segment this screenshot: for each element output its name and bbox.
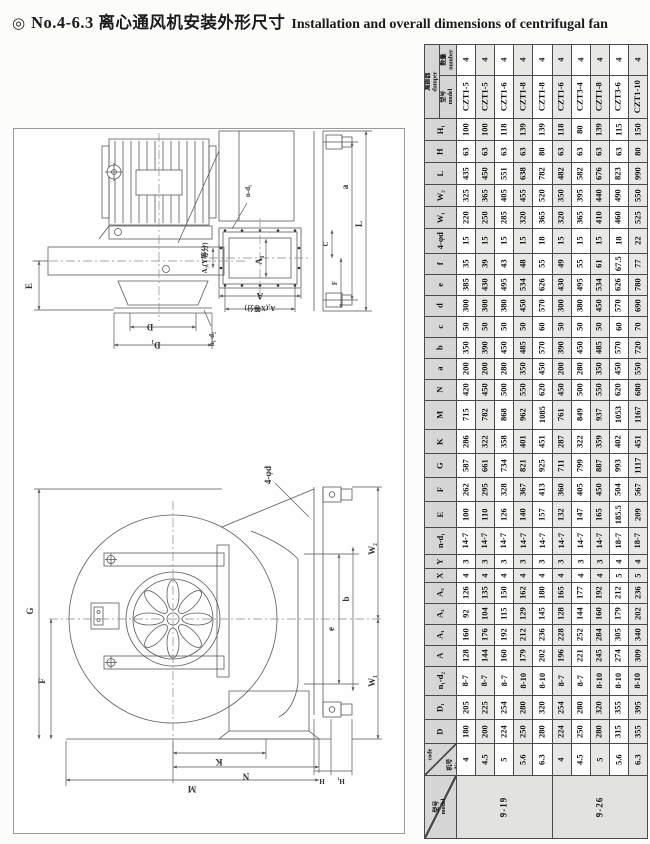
table-cell-text: 495: [500, 279, 509, 292]
dim-label-A: A: [256, 291, 263, 301]
table-cell: 300: [476, 296, 494, 316]
table-cell: 55: [533, 254, 551, 274]
table-cell-text: 50: [480, 323, 489, 332]
table-cell-text: 430: [557, 279, 566, 292]
side-view-drawing: E D D₁ n₁-d₂ A₁ A A₂(X等分) A₃(Y等分) n-d₁ a…: [14, 129, 404, 459]
table-cell-text: 104: [480, 608, 489, 621]
table-cell: 280: [495, 359, 513, 379]
table-cell: 380: [572, 296, 590, 316]
table-cell-text: 4: [461, 58, 470, 62]
table-cell: 780: [629, 275, 647, 295]
table-cell-text: 350: [595, 363, 604, 376]
row-label: W₁: [425, 207, 456, 228]
table-cell: 8-10: [514, 667, 532, 695]
table-cell: CZT1-6: [495, 76, 513, 118]
table-cell: 4: [476, 45, 494, 75]
table-cell-text: 50: [557, 323, 566, 332]
table-cell-text: 145: [538, 608, 547, 621]
table-cell: 205: [457, 696, 475, 719]
table-cell-text: 380: [500, 300, 509, 313]
table-cell-text: 993: [614, 459, 623, 472]
table-cell: 15: [457, 229, 475, 253]
table-cell-text: 15: [519, 237, 528, 246]
table-cell-text: 355: [633, 725, 642, 738]
table-cell: 482: [553, 163, 571, 184]
table-cell: 192: [495, 625, 513, 645]
table-cell-text: 147: [576, 508, 585, 521]
table-cell: 129: [514, 604, 532, 624]
table-cell-text: 60: [614, 323, 623, 332]
table-cell: 80: [572, 119, 590, 140]
table-cell-text: 761: [557, 409, 566, 422]
page-title-zh: No.4-6.3 离心通风机安装外形尺寸: [31, 9, 285, 33]
table-cell: 160: [457, 625, 475, 645]
dimensions-table: 减振器 damper数量 number4444444444型号 modelCZT…: [424, 44, 648, 839]
table-cell-text: 395: [576, 189, 585, 202]
table-cell-text: 711: [557, 459, 566, 471]
table-cell: 115: [610, 119, 628, 140]
table-cell: 823: [610, 163, 628, 184]
table-cell: 3: [476, 555, 494, 568]
table-cell-text: 118: [500, 123, 509, 135]
table-cell: 4: [514, 45, 532, 75]
table-cell-text: 4: [595, 58, 604, 62]
table-cell: 385: [457, 275, 475, 295]
row-label: X: [425, 569, 456, 582]
table-cell: 782: [533, 163, 551, 184]
table-cell: 300: [457, 296, 475, 316]
table-cell-text: 925: [538, 459, 547, 472]
table-cell: 110: [476, 502, 494, 527]
table-cell: 455: [514, 185, 532, 206]
table-cell-text: 192: [500, 629, 509, 642]
table-cell-text: 61: [595, 260, 604, 269]
table-cell-text: 450: [576, 342, 585, 355]
table-cell-text: CZT3-4: [576, 83, 585, 112]
dim-label-nd1: n-d₁: [244, 185, 252, 197]
table-cell: 3: [572, 555, 590, 568]
table-cell-text: 221: [576, 650, 585, 663]
dim-label-G: G: [25, 607, 35, 614]
table-cell-text: 8-7: [480, 675, 489, 686]
row-label-text: f: [436, 263, 445, 266]
table-cell: 140: [514, 502, 532, 527]
table-cell: 35: [457, 254, 475, 274]
table-cell-text: 80: [576, 125, 585, 134]
table-cell: 60: [533, 317, 551, 337]
table-cell-text: 15: [576, 237, 585, 246]
table-cell: 4: [591, 45, 609, 75]
page-title: ◎ No.4-6.3 离心通风机安装外形尺寸 Installation and …: [12, 9, 608, 33]
table-cell-text: 202: [633, 608, 642, 621]
table-cell: 450: [572, 338, 590, 358]
table-cell-text: 115: [614, 123, 623, 135]
table-cell-text: 3: [538, 559, 547, 563]
table-cell: 320: [591, 696, 609, 719]
table-cell-text: 212: [614, 587, 623, 600]
table-cell-text: 322: [576, 435, 585, 448]
table-cell: 179: [610, 604, 628, 624]
table-cell-text: 390: [480, 342, 489, 355]
table-cell: CZT3-6: [610, 76, 628, 118]
table-cell-text: 320: [557, 211, 566, 224]
row-label-text: D₁: [436, 703, 445, 712]
dim-label-N: N: [242, 771, 249, 781]
table-cell: CZT1-8: [533, 76, 551, 118]
table-cell: 350: [457, 338, 475, 358]
table-cell-text: 43: [500, 260, 509, 269]
row-label: 4-φd: [425, 229, 456, 253]
table-cell: 128: [457, 646, 475, 666]
table-cell: 14-7: [591, 528, 609, 554]
table-cell-text: 500: [500, 384, 509, 397]
table-cell: 365: [476, 185, 494, 206]
table-cell: 118: [553, 119, 571, 140]
table-cell: 92: [457, 604, 475, 624]
table-cell-text: 160: [461, 629, 470, 642]
table-cell-text: 165: [595, 508, 604, 521]
table-cell-text: 482: [557, 167, 566, 180]
table-cell-text: 115: [500, 608, 509, 620]
row-label-model-text: 型号 model: [434, 799, 447, 815]
row-label-text: L: [436, 171, 445, 177]
table-cell-text: 144: [576, 608, 585, 621]
table-cell: 157: [533, 502, 551, 527]
table-cell: 485: [514, 338, 532, 358]
dim-label-K: K: [215, 757, 222, 767]
row-label: L: [425, 163, 456, 184]
table-cell-text: 128: [557, 608, 566, 621]
table-cell: 5: [629, 569, 647, 582]
table-cell: 570: [533, 296, 551, 316]
table-cell: 280: [591, 720, 609, 743]
table-cell: 280: [514, 696, 532, 719]
table-cell: 60: [610, 317, 628, 337]
table-cell: 485: [591, 338, 609, 358]
row-label: K: [425, 430, 456, 453]
table-cell-text: 5: [633, 573, 642, 577]
table-cell-text: 8-10: [614, 673, 623, 689]
table-cell: 450: [514, 296, 532, 316]
table-cell-text: 63: [480, 147, 489, 156]
table-cell: 3: [495, 555, 513, 568]
table-cell-text: 15: [557, 237, 566, 246]
table-cell: 626: [533, 275, 551, 295]
table-cell: 500: [495, 380, 513, 400]
table-cell-text: 48: [519, 260, 528, 269]
table-cell-text: 280: [500, 363, 509, 376]
table-cell: 8-10: [610, 667, 628, 695]
table-cell-text: 236: [538, 629, 547, 642]
table-cell-text: 410: [595, 211, 604, 224]
row-label: A₁: [425, 625, 456, 645]
table-cell-text: 780: [633, 279, 642, 292]
row-label-text: d: [436, 304, 445, 309]
table-cell: 63: [610, 141, 628, 162]
row-label-text: Y: [436, 558, 445, 564]
table-cell: CZT1-5: [457, 76, 475, 118]
table-cell-text: 250: [519, 725, 528, 738]
table-cell-text: 50: [595, 323, 604, 332]
table-cell: 4: [591, 569, 609, 582]
table-cell: 4: [553, 569, 571, 582]
table-cell: 55: [572, 254, 590, 274]
table-cell: 5.6: [514, 744, 532, 775]
table-cell-text: 4: [461, 573, 470, 577]
table-cell-text: 135: [480, 587, 489, 600]
table-cell-text: 3: [557, 559, 566, 563]
row-label: n-d₁: [425, 528, 456, 554]
table-cell: 50: [495, 317, 513, 337]
table-cell: 228: [553, 625, 571, 645]
row-label: A: [425, 646, 456, 666]
table-cell: 128: [553, 604, 571, 624]
table-cell: 100: [476, 119, 494, 140]
table-cell-text: 450: [480, 384, 489, 397]
table-cell: 285: [495, 207, 513, 228]
table-cell-text: 280: [519, 701, 528, 714]
table-cell-text: 192: [595, 587, 604, 600]
table-cell: 401: [514, 430, 532, 453]
table-cell-text: 365: [538, 211, 547, 224]
table-cell: 139: [591, 119, 609, 140]
table-cell-text: 359: [595, 435, 604, 448]
row-label-text: H: [436, 148, 445, 155]
drawing-frame: E D D₁ n₁-d₂ A₁ A A₂(X等分) A₃(Y等分) n-d₁ a…: [13, 128, 405, 834]
dim-label-H: H: [319, 777, 325, 785]
dim-label-b: b: [341, 596, 351, 601]
table-cell: 340: [629, 625, 647, 645]
table-cell-text: 520: [538, 189, 547, 202]
table-cell: 4: [457, 45, 475, 75]
table-cell-text: 22: [633, 237, 642, 246]
catalog-page: { "title": { "bullet": "◎", "zh": "No.4-…: [0, 0, 650, 844]
table-cell: 534: [591, 275, 609, 295]
table-cell: 390: [476, 338, 494, 358]
table-cell-text: 18: [614, 237, 623, 246]
table-cell-text: 1167: [633, 407, 642, 424]
table-cell-text: 245: [595, 650, 604, 663]
table-cell: 14-7: [476, 528, 494, 554]
table-cell-text: 367: [519, 483, 528, 496]
table-cell-text: 435: [461, 167, 470, 180]
dim-label-W1: W₁: [367, 675, 377, 687]
table-cell-text: 799: [576, 459, 585, 472]
table-cell: 4: [514, 569, 532, 582]
table-cell: 4: [629, 45, 647, 75]
row-label-text: F: [436, 487, 445, 492]
table-cell: 626: [610, 275, 628, 295]
table-cell-text: 309: [633, 650, 642, 663]
table-cell: 582: [572, 163, 590, 184]
table-cell: CZT1-10: [629, 76, 647, 118]
table-cell: 15: [553, 229, 571, 253]
table-cell: 715: [457, 401, 475, 429]
table-cell-text: 385: [461, 279, 470, 292]
table-cell: 534: [514, 275, 532, 295]
table-cell: 570: [610, 338, 628, 358]
row-label-text: N: [436, 387, 445, 393]
table-cell: 179: [514, 646, 532, 666]
table-cell-text: 504: [614, 483, 623, 496]
table-cell-text: 620: [538, 384, 547, 397]
table-cell: 139: [533, 119, 551, 140]
table-cell: 620: [610, 380, 628, 400]
table-cell: 185.5: [610, 502, 628, 527]
table-cell-text: 3: [595, 559, 604, 563]
table-cell: 360: [553, 478, 571, 501]
row-label-damper-model: 型号 model: [440, 76, 456, 118]
table-cell-text: 224: [557, 725, 566, 738]
table-cell-text: 420: [461, 384, 470, 397]
table-cell: 395: [629, 696, 647, 719]
table-cell-text: 5.6: [519, 754, 528, 765]
table-cell-text: 570: [538, 342, 547, 355]
table-cell: 410: [591, 207, 609, 228]
table-cell-text: 228: [557, 629, 566, 642]
table-cell: 5: [591, 744, 609, 775]
row-label: A₃: [425, 583, 456, 603]
table-cell-text: 287: [557, 435, 566, 448]
table-cell-text: 128: [461, 650, 470, 663]
table-cell: 3: [514, 555, 532, 568]
table-cell-text: 180: [461, 725, 470, 738]
table-cell-text: 990: [633, 167, 642, 180]
table-cell-text: 8-10: [519, 673, 528, 689]
table-cell: 504: [610, 478, 628, 501]
table-cell: 4: [553, 744, 571, 775]
table-cell-text: 162: [519, 587, 528, 600]
front-view-drawing: 4-φd G F W₂ W₁ e b K N M H H₁: [14, 459, 404, 833]
table-cell: 4: [572, 45, 590, 75]
table-cell: 236: [533, 625, 551, 645]
table-cell: 200: [476, 720, 494, 743]
table-cell-text: 450: [614, 363, 623, 376]
table-cell: 711: [553, 454, 571, 477]
table-cell-text: 365: [480, 189, 489, 202]
table-cell-text: 638: [519, 167, 528, 180]
table-cell-text: 430: [480, 279, 489, 292]
table-cell: 212: [514, 625, 532, 645]
table-cell: 5: [610, 569, 628, 582]
table-cell-text: 200: [461, 363, 470, 376]
table-cell: 135: [476, 583, 494, 603]
row-label: G: [425, 454, 456, 477]
row-label-text: b: [436, 346, 445, 351]
table-cell-text: 720: [633, 342, 642, 355]
table-cell-text: 305: [614, 629, 623, 642]
table-cell-text: 14-7: [576, 533, 585, 549]
table-cell: 280: [533, 720, 551, 743]
table-cell: 450: [476, 380, 494, 400]
table-cell: 4: [553, 45, 571, 75]
table-cell-text: 4: [480, 573, 489, 577]
table-cell: 100: [457, 502, 475, 527]
table-cell-text: 782: [538, 167, 547, 180]
table-cell: 250: [572, 720, 590, 743]
table-cell: 200: [457, 359, 475, 379]
table-cell-text: 551: [500, 167, 509, 180]
table-cell-text: 1085: [538, 407, 547, 424]
table-cell: 799: [572, 454, 590, 477]
table-cell: 165: [553, 583, 571, 603]
table-cell-text: 350: [557, 189, 566, 202]
table-cell: 115: [495, 604, 513, 624]
table-cell: 430: [553, 275, 571, 295]
table-cell: 320: [514, 207, 532, 228]
table-cell: 359: [591, 430, 609, 453]
table-cell: 8-7: [476, 667, 494, 695]
table-cell-text: 821: [519, 459, 528, 472]
table-cell: 165: [591, 502, 609, 527]
table-cell-text: 160: [500, 650, 509, 663]
table-cell: 4: [495, 45, 513, 75]
table-cell-text: 70: [633, 323, 642, 332]
table-cell: 126: [495, 502, 513, 527]
table-cell: 162: [514, 583, 532, 603]
table-cell-text: 570: [614, 300, 623, 313]
table-cell: 450: [553, 380, 571, 400]
dim-label-A2x: A₂(X等分): [244, 304, 276, 313]
table-cell-text: 440: [595, 189, 604, 202]
table-cell-text: 14-7: [480, 533, 489, 549]
table-cell: 500: [572, 380, 590, 400]
table-cell: 100: [457, 119, 475, 140]
table-cell-text: 300: [480, 300, 489, 313]
row-label-text: D: [436, 728, 445, 734]
table-cell-text: 570: [538, 300, 547, 313]
table-cell: 4: [457, 569, 475, 582]
table-cell-text: 50: [461, 323, 470, 332]
row-label-text: M: [436, 411, 445, 419]
table-cell: 4: [533, 45, 551, 75]
table-cell-text: 490: [614, 189, 623, 202]
table-cell-text: 39: [480, 260, 489, 269]
table-cell-text: 4: [557, 58, 566, 62]
table-cell-text: 200: [480, 725, 489, 738]
table-cell-text: 14-7: [595, 533, 604, 549]
table-cell: 490: [610, 185, 628, 206]
table-cell-text: 55: [538, 260, 547, 269]
row-label-text: 4-φd: [436, 232, 445, 249]
table-cell-text: CZT1-10: [633, 80, 642, 113]
table-cell: 6.3: [533, 744, 551, 775]
table-cell: 4: [495, 569, 513, 582]
row-label: D: [425, 720, 456, 743]
table-cell-text: 405: [576, 483, 585, 496]
table-cell-text: 8-7: [461, 675, 470, 686]
table-cell-text: 534: [595, 279, 604, 292]
table-cell-text: 550: [633, 189, 642, 202]
row-label-text: n₁-d₂: [436, 672, 445, 689]
table-cell-text: 325: [461, 189, 470, 202]
dim-label-H1: H₁: [337, 777, 345, 785]
table-cell-text: 3: [480, 559, 489, 563]
table-cell-text: 150: [500, 587, 509, 600]
table-cell-text: 350: [461, 342, 470, 355]
table-cell: 5: [495, 744, 513, 775]
table-cell: 63: [514, 141, 532, 162]
table-cell: 3: [553, 555, 571, 568]
table-cell: 209: [629, 502, 647, 527]
table-cell-text: 118: [557, 123, 566, 135]
table-cell: 1085: [533, 401, 551, 429]
table-cell: 150: [495, 583, 513, 603]
table-cell: 15: [476, 229, 494, 253]
row-label: M: [425, 401, 456, 429]
table-cell: 3: [457, 555, 475, 568]
table-cell: 570: [533, 338, 551, 358]
